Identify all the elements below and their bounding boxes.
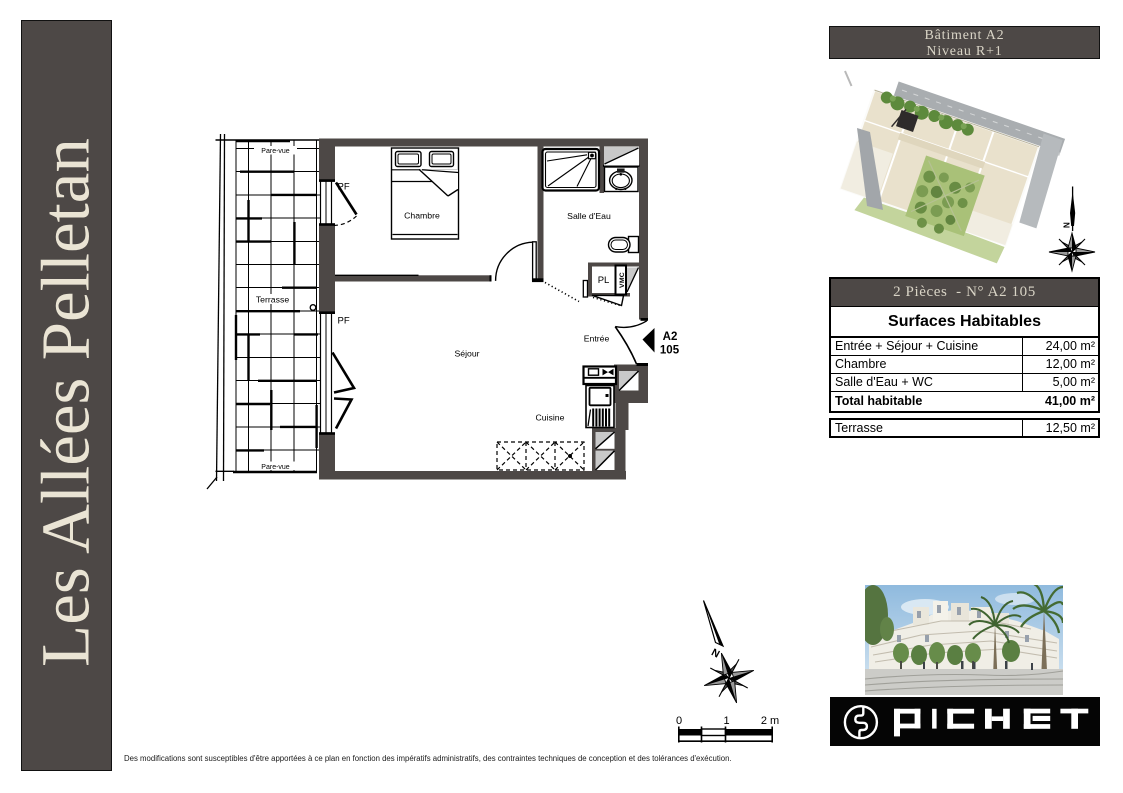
svg-text:Cuisine: Cuisine — [536, 413, 565, 423]
svg-text:PF: PF — [338, 182, 350, 193]
svg-text:0: 0 — [676, 715, 682, 727]
svg-text:Pare-vue: Pare-vue — [261, 148, 290, 155]
svg-text:N: N — [709, 646, 721, 660]
svg-text:N: N — [1063, 222, 1072, 228]
svg-text:Séjour: Séjour — [454, 349, 479, 359]
svg-text:PL: PL — [598, 275, 610, 286]
svg-text:2 m: 2 m — [761, 715, 779, 727]
svg-text:Pare-vue: Pare-vue — [261, 464, 290, 471]
svg-text:Entrée: Entrée — [584, 334, 610, 344]
svg-text:1: 1 — [723, 715, 729, 727]
svg-text:Chambre: Chambre — [404, 211, 440, 221]
svg-text:105: 105 — [660, 345, 680, 357]
svg-text:Salle d'Eau: Salle d'Eau — [567, 211, 611, 221]
svg-text:Terrasse: Terrasse — [256, 295, 289, 305]
svg-text:VMC: VMC — [619, 272, 626, 288]
svg-text:A2: A2 — [663, 331, 678, 343]
svg-text:PF: PF — [338, 316, 350, 327]
